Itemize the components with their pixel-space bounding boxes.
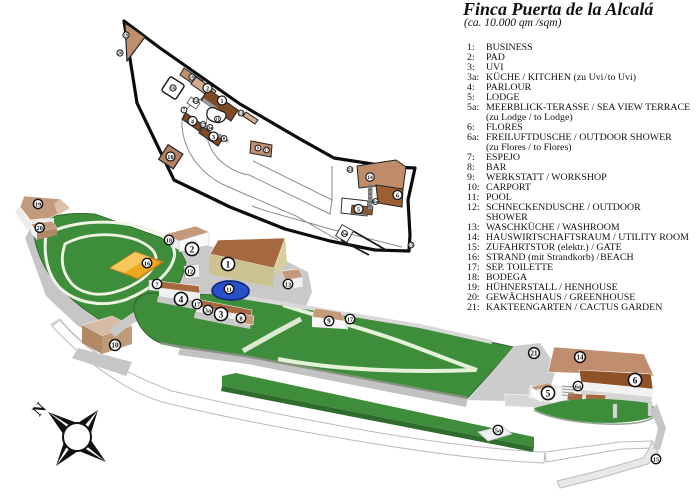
- svg-text:5a: 5a: [495, 428, 501, 435]
- svg-text:14: 14: [367, 175, 373, 181]
- svg-text:21: 21: [531, 350, 539, 358]
- svg-text:3: 3: [212, 134, 215, 141]
- svg-text:17: 17: [347, 317, 353, 324]
- svg-text:20: 20: [37, 225, 43, 232]
- svg-text:1: 1: [220, 98, 223, 105]
- svg-text:5: 5: [357, 206, 360, 213]
- svg-text:14: 14: [577, 354, 585, 362]
- svg-text:6a: 6a: [575, 384, 581, 391]
- svg-text:19: 19: [35, 201, 41, 208]
- svg-text:10: 10: [111, 342, 119, 350]
- svg-text:9: 9: [327, 319, 331, 326]
- svg-text:2: 2: [206, 85, 209, 92]
- svg-text:1: 1: [226, 261, 231, 271]
- svg-text:3: 3: [219, 311, 224, 321]
- svg-text:8: 8: [239, 316, 242, 323]
- svg-text:4: 4: [179, 296, 184, 306]
- svg-text:13: 13: [285, 282, 291, 289]
- svg-text:10: 10: [167, 154, 173, 161]
- svg-text:6: 6: [633, 377, 638, 387]
- svg-text:17: 17: [194, 302, 200, 309]
- svg-text:5: 5: [546, 390, 551, 400]
- svg-text:15: 15: [653, 457, 659, 464]
- svg-text:16: 16: [144, 261, 150, 268]
- svg-text:3a: 3a: [205, 308, 211, 315]
- svg-text:21: 21: [348, 167, 352, 172]
- svg-text:11: 11: [226, 287, 232, 294]
- svg-text:12: 12: [194, 98, 198, 103]
- svg-text:2: 2: [190, 246, 195, 256]
- svg-text:11: 11: [215, 117, 219, 122]
- svg-text:18: 18: [166, 238, 172, 245]
- svg-text:12: 12: [187, 269, 193, 276]
- svg-text:7: 7: [155, 282, 158, 289]
